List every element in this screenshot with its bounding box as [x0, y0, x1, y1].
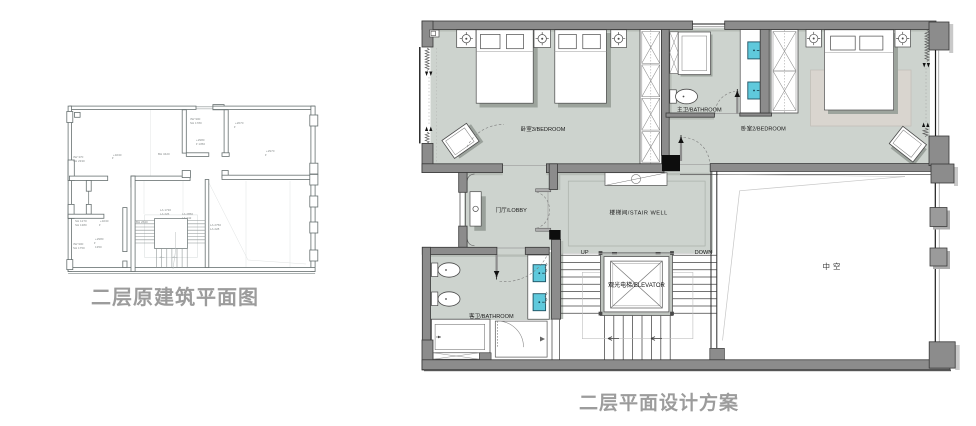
svg-text:SH 2330: SH 2330 — [73, 159, 85, 163]
svg-text:卧室2/BEDROOM: 卧室2/BEDROOM — [741, 125, 786, 133]
svg-text:+2980: +2980 — [95, 237, 104, 241]
svg-text:+2970: +2970 — [266, 149, 275, 153]
svg-text:LA 242: LA 242 — [182, 216, 192, 220]
svg-text:中空: 中空 — [823, 261, 844, 271]
svg-text:1350: 1350 — [95, 245, 102, 249]
svg-text:UP: UP — [581, 250, 589, 256]
svg-text:观光电梯/ELEVATOR: 观光电梯/ELEVATOR — [608, 281, 665, 289]
svg-text:▾ 1350: ▾ 1350 — [196, 142, 205, 146]
svg-text:BH 3420: BH 3420 — [158, 152, 170, 156]
svg-text:LA 226: LA 226 — [160, 212, 170, 216]
svg-text:卧室3/BEDROOM: 卧室3/BEDROOM — [521, 125, 566, 133]
svg-text:二层平面设计方案: 二层平面设计方案 — [579, 391, 739, 414]
svg-text:LA 228: LA 228 — [210, 227, 220, 231]
svg-text:+2670: +2670 — [235, 121, 244, 125]
svg-text:+3230: +3230 — [100, 219, 109, 223]
svg-text:DOWN: DOWN — [695, 250, 713, 256]
svg-text:客卫/BATHROOM: 客卫/BATHROOM — [469, 312, 514, 320]
svg-text:门厅/LOBBY: 门厅/LOBBY — [496, 206, 528, 214]
svg-text:SH 1780: SH 1780 — [190, 121, 202, 125]
svg-text:BH 2640: BH 2640 — [136, 220, 148, 224]
svg-text:楼梯间/STAIR WELL: 楼梯间/STAIR WELL — [610, 209, 668, 217]
svg-text:SH 1750: SH 1750 — [73, 246, 85, 250]
svg-text:主卫/BATHROOM: 主卫/BATHROOM — [677, 106, 722, 114]
svg-text:+3230: +3230 — [113, 153, 122, 157]
svg-text:二层原建筑平面图: 二层原建筑平面图 — [91, 285, 259, 309]
svg-text:SH 1380: SH 1380 — [75, 223, 87, 227]
